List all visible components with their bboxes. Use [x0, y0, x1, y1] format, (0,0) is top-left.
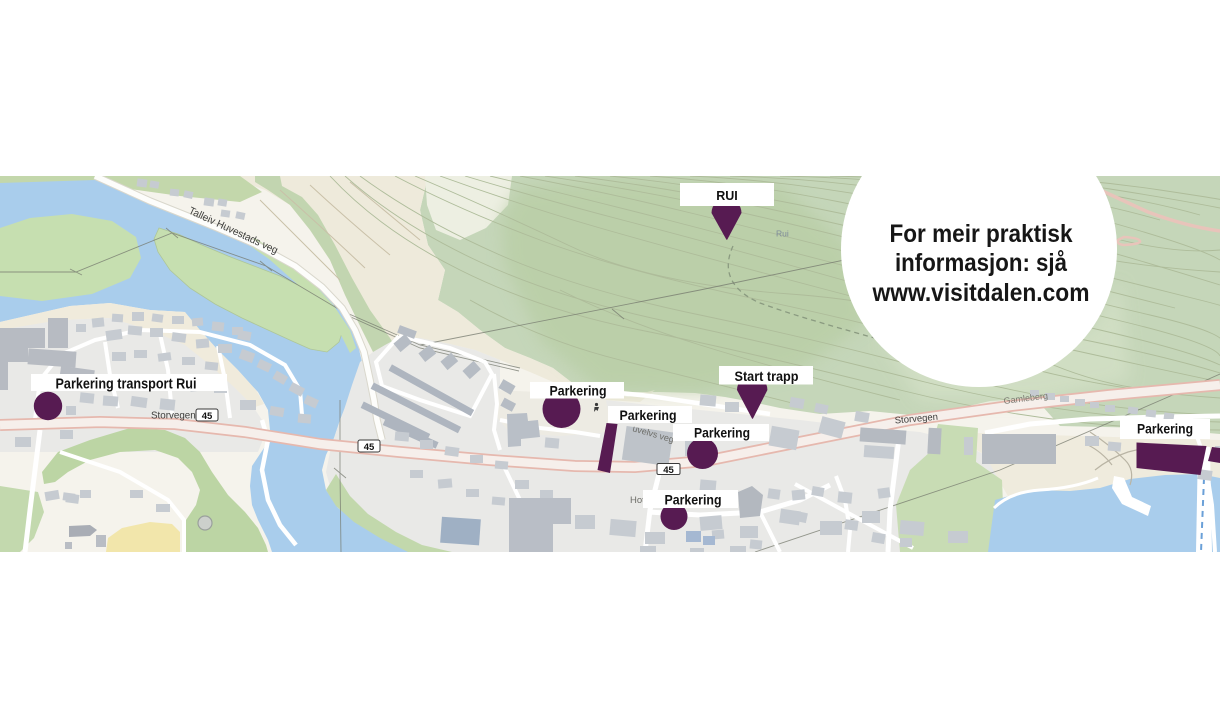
svg-text:Hot: Hot [630, 495, 645, 506]
svg-text:Parkering: Parkering [665, 492, 722, 508]
svg-text:informasjon: sjå: informasjon: sjå [895, 249, 1067, 277]
svg-text:45: 45 [202, 411, 213, 422]
svg-text:Start trapp: Start trapp [735, 369, 799, 384]
svg-text:Parkering: Parkering [1137, 421, 1193, 437]
svg-text:45: 45 [663, 465, 674, 476]
svg-text:Storvegen: Storvegen [151, 411, 196, 422]
svg-text:Parkering: Parkering [620, 407, 677, 423]
svg-text:Rui: Rui [776, 229, 789, 239]
svg-text:For meir praktisk: For meir praktisk [890, 220, 1073, 248]
svg-text:Parkering: Parkering [550, 383, 607, 399]
svg-text:45: 45 [364, 442, 375, 453]
svg-text:Parkering transport Rui: Parkering transport Rui [56, 377, 197, 393]
svg-text:www.visitdalen.com: www.visitdalen.com [872, 279, 1090, 307]
svg-text:Parkering: Parkering [694, 425, 750, 441]
svg-text:RUI: RUI [716, 189, 738, 203]
